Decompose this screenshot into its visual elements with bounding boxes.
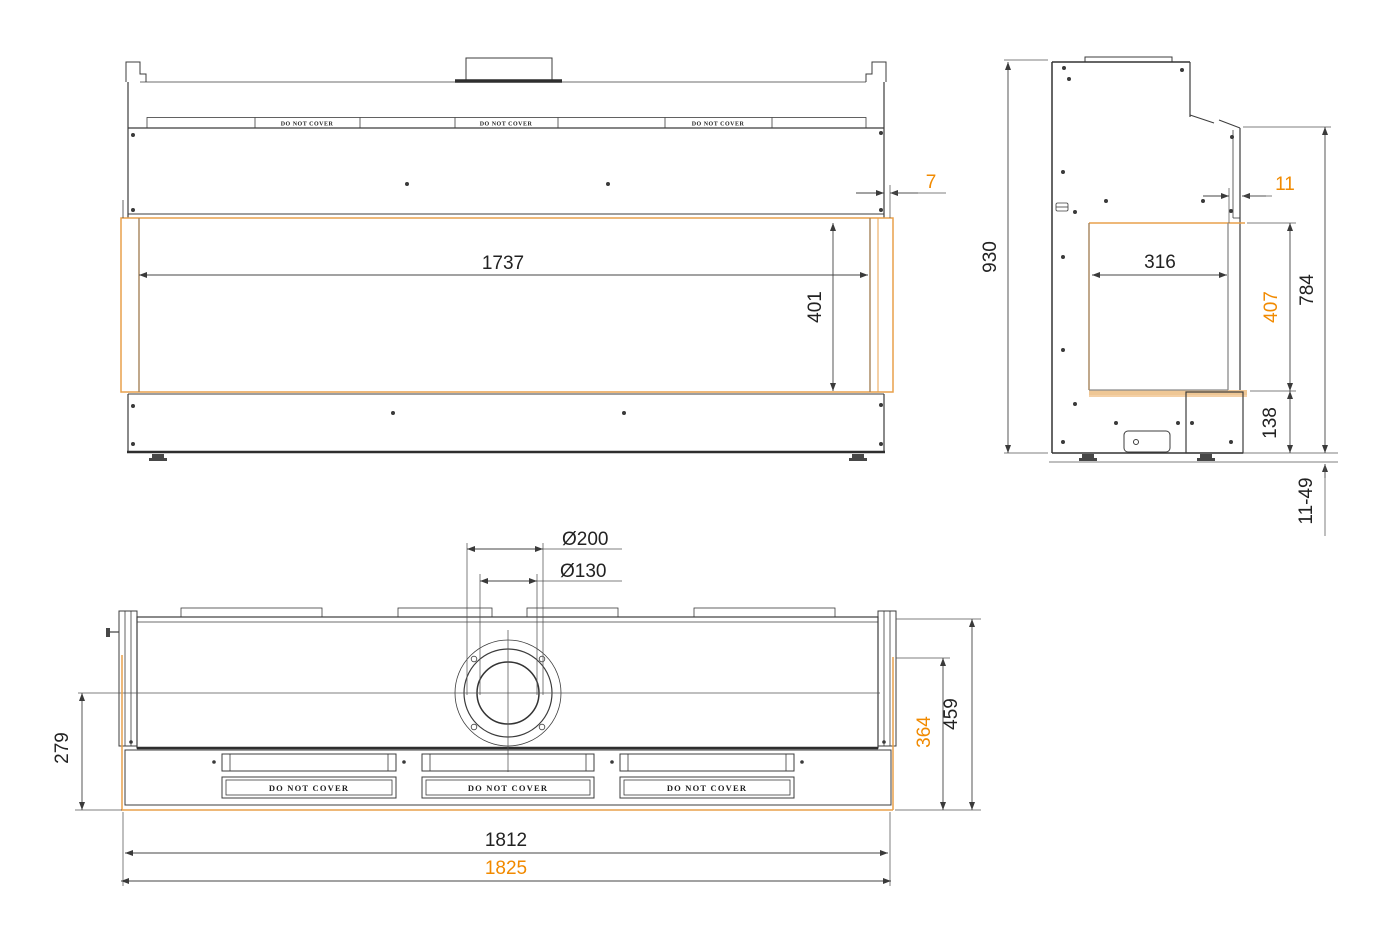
front-right-foot: [852, 454, 864, 458]
side-back-foot: [1082, 454, 1094, 458]
dim-opening-width: 1737: [482, 253, 524, 274]
dim-glass-width: 1825: [485, 858, 527, 879]
dim-opening-height: 401: [805, 291, 826, 323]
dim-feet-range: 11-49: [1296, 477, 1317, 524]
side-base-box: [1186, 392, 1243, 453]
plan-side-bolt: [106, 628, 110, 637]
dim-center-to-front: 279: [52, 732, 73, 764]
do-not-cover-label: DO NOT COVER: [468, 783, 548, 793]
do-not-cover-label: DO NOT COVER: [269, 783, 349, 793]
technical-drawing-canvas: DO NOT COVER DO NOT COVER DO NOT COVER 1…: [0, 0, 1400, 941]
plan-tab: [694, 608, 835, 617]
front-top-right-tab: [866, 62, 886, 82]
do-not-cover-label: DO NOT COVER: [692, 122, 745, 128]
front-screws: [131, 131, 883, 446]
dim-side-opening-height: 407: [1261, 291, 1282, 323]
plan-body: [137, 617, 878, 748]
front-left-foot: [152, 454, 164, 458]
do-not-cover-label: DO NOT COVER: [480, 122, 533, 128]
side-view: 930 11 316 407 784 138 11-49: [980, 57, 1338, 536]
plan-screw: [882, 740, 886, 744]
front-view: DO NOT COVER DO NOT COVER DO NOT COVER 1…: [121, 58, 946, 461]
plan-do-not-cover-vents: DO NOT COVER DO NOT COVER DO NOT COVER: [222, 777, 794, 798]
front-top-left-tab: [126, 62, 146, 82]
plan-view: Ø200 Ø130 DO NOT COVER DO NOT COVER: [52, 529, 981, 886]
dim-total-height: 930: [980, 241, 1001, 273]
side-front-foot-pad: [1197, 458, 1215, 461]
plan-tab: [181, 608, 322, 617]
dim-glass-depth: 364: [914, 716, 935, 748]
dim-total-depth: 459: [941, 698, 962, 730]
glass-frame-outline: [121, 218, 893, 392]
side-handle-recess: [1124, 431, 1170, 452]
do-not-cover-label: DO NOT COVER: [667, 783, 747, 793]
side-back-foot-pad: [1079, 458, 1097, 461]
dim-flue-outer: Ø200: [562, 529, 608, 550]
plan-tab: [398, 608, 492, 617]
dim-opening-depth: 316: [1144, 252, 1176, 273]
plan-tab: [527, 608, 618, 617]
do-not-cover-label: DO NOT COVER: [281, 122, 334, 128]
dim-flue-inner: Ø130: [560, 561, 606, 582]
side-step-diagonal-1: [1190, 115, 1214, 123]
dim-glass-offset: 7: [926, 172, 937, 193]
front-left-foot-pad: [149, 458, 167, 461]
flue-collar: [466, 58, 552, 80]
dim-body-width: 1812: [485, 830, 527, 851]
side-front-foot: [1200, 454, 1212, 458]
side-step-diagonal-2: [1219, 120, 1240, 128]
dim-glass-thickness: 11: [1275, 174, 1295, 195]
side-handle-screw: [1134, 440, 1139, 445]
dim-base-height: 138: [1260, 407, 1281, 439]
dim-front-height: 784: [1297, 274, 1318, 306]
fireplace-dimension-drawing: DO NOT COVER DO NOT COVER DO NOT COVER 1…: [0, 0, 1400, 941]
plan-screw: [129, 740, 133, 744]
front-right-foot-pad: [849, 458, 867, 461]
